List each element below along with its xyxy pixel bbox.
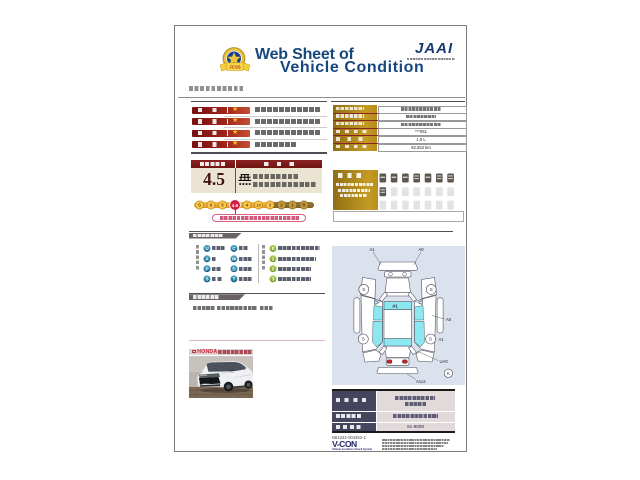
svg-text:1: 1 [272, 257, 275, 262]
svg-text:S: S [205, 277, 208, 282]
svg-text:A1x2: A1x2 [416, 379, 426, 384]
svg-text:S: S [429, 337, 432, 342]
svg-text:A1: A1 [438, 337, 444, 342]
svg-text:3: 3 [272, 277, 275, 282]
svg-text:0: 0 [272, 246, 275, 251]
svg-text:S: S [429, 287, 432, 292]
svg-text:T: T [233, 277, 236, 282]
svg-text:JCSS: JCSS [229, 65, 241, 70]
svg-text:A0: A0 [418, 247, 424, 252]
svg-text:W: W [232, 257, 237, 262]
svg-text:A0: A0 [446, 317, 452, 322]
svg-text:P: P [205, 266, 208, 271]
svg-text:2: 2 [272, 266, 275, 271]
svg-text:S: S [362, 287, 365, 292]
svg-text:S: S [198, 203, 201, 208]
svg-text:K: K [446, 371, 449, 376]
svg-text:A1: A1 [392, 304, 398, 309]
svg-text:A1: A1 [369, 247, 375, 252]
svg-text:3.5: 3.5 [256, 203, 260, 207]
svg-text:UA0: UA0 [439, 359, 448, 364]
svg-text:S: S [361, 337, 364, 342]
